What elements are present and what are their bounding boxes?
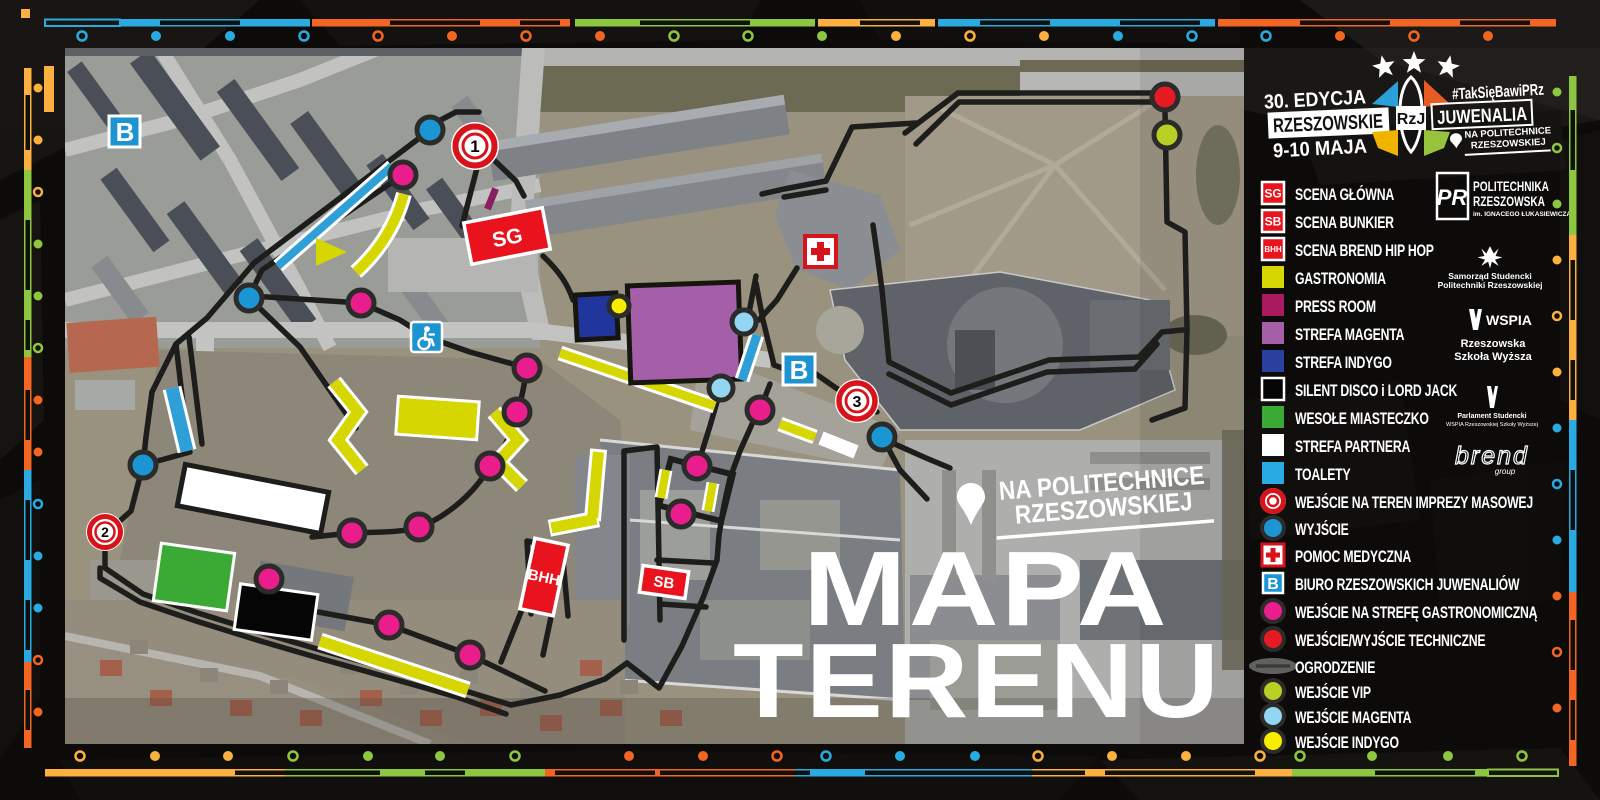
svg-text:OGRODZENIE: OGRODZENIE — [1295, 659, 1376, 677]
svg-text:WESOŁE MIASTECZKO: WESOŁE MIASTECZKO — [1295, 410, 1429, 428]
svg-text:SG: SG — [1264, 186, 1281, 200]
svg-text:group: group — [1495, 467, 1516, 476]
svg-text:STREFA MAGENTA: STREFA MAGENTA — [1295, 326, 1405, 344]
svg-text:im. IGNACEGO ŁUKASIEWICZA: im. IGNACEGO ŁUKASIEWICZA — [1473, 211, 1572, 218]
svg-text:brend: brend — [1455, 442, 1529, 470]
svg-text:SCENA BUNKIER: SCENA BUNKIER — [1295, 214, 1394, 232]
svg-text:SB: SB — [1265, 214, 1282, 228]
svg-text:WEJŚCIE NA TEREN IMPREZY MASOW: WEJŚCIE NA TEREN IMPREZY MASOWEJ — [1295, 492, 1533, 513]
svg-text:POLITECHNIKA: POLITECHNIKA — [1473, 179, 1549, 194]
svg-text:1: 1 — [470, 137, 479, 156]
svg-text:RzJ: RzJ — [1397, 111, 1425, 128]
svg-text:B: B — [116, 117, 135, 147]
svg-text:WSPIA: WSPIA — [1486, 312, 1532, 328]
svg-text:Rzeszowska: Rzeszowska — [1461, 338, 1527, 350]
svg-text:RZESZOWSKA: RZESZOWSKA — [1473, 194, 1545, 209]
svg-text:B: B — [790, 355, 809, 385]
svg-text:2: 2 — [101, 524, 109, 540]
svg-text:WEJŚCIE MAGENTA: WEJŚCIE MAGENTA — [1295, 707, 1412, 728]
svg-text:SILENT DISCO i LORD JACK: SILENT DISCO i LORD JACK — [1295, 382, 1458, 400]
svg-text:TERENU: TERENU — [733, 622, 1221, 740]
svg-text:BHH: BHH — [1264, 245, 1282, 254]
svg-text:TOALETY: TOALETY — [1295, 466, 1351, 484]
svg-text:WSPIA Rzeszowskiej Szkoły Wyżs: WSPIA Rzeszowskiej Szkoły Wyższej — [1446, 422, 1538, 428]
svg-text:PR: PR — [1437, 185, 1468, 210]
svg-text:STREFA INDYGO: STREFA INDYGO — [1295, 354, 1392, 372]
svg-text:Szkoła Wyższa: Szkoła Wyższa — [1454, 351, 1532, 363]
svg-text:Parlament Studencki: Parlament Studencki — [1457, 413, 1526, 420]
svg-text:STREFA PARTNERA: STREFA PARTNERA — [1295, 438, 1411, 456]
svg-text:GASTRONOMIA: GASTRONOMIA — [1295, 270, 1386, 288]
svg-text:WEJŚCIE INDYGO: WEJŚCIE INDYGO — [1295, 732, 1399, 753]
svg-text:BIURO RZESZOWSKICH JUWENALIÓW: BIURO RZESZOWSKICH JUWENALIÓW — [1295, 574, 1520, 595]
svg-text:Politechniki Rzeszowskiej: Politechniki Rzeszowskiej — [1438, 280, 1543, 290]
svg-text:JUWENALIA: JUWENALIA — [1437, 104, 1528, 129]
svg-text:POMOC MEDYCZNA: POMOC MEDYCZNA — [1295, 548, 1412, 566]
svg-text:WEJŚCIE NA STREFĘ GASTRONOMICZ: WEJŚCIE NA STREFĘ GASTRONOMICZNĄ — [1295, 602, 1538, 623]
svg-text:B: B — [1267, 576, 1279, 593]
svg-text:WEJŚCIE/WYJŚCIE TECHNICZNE: WEJŚCIE/WYJŚCIE TECHNICZNE — [1295, 630, 1486, 651]
svg-text:3: 3 — [853, 394, 862, 411]
svg-text:SCENA BREND HIP HOP: SCENA BREND HIP HOP — [1295, 242, 1434, 260]
svg-text:SCENA GŁÓWNA: SCENA GŁÓWNA — [1295, 184, 1395, 205]
svg-text:PRESS ROOM: PRESS ROOM — [1295, 298, 1376, 316]
svg-text:SB: SB — [652, 573, 675, 593]
svg-text:WYJŚCIE: WYJŚCIE — [1295, 519, 1349, 540]
svg-text:WEJŚCIE VIP: WEJŚCIE VIP — [1295, 682, 1371, 703]
